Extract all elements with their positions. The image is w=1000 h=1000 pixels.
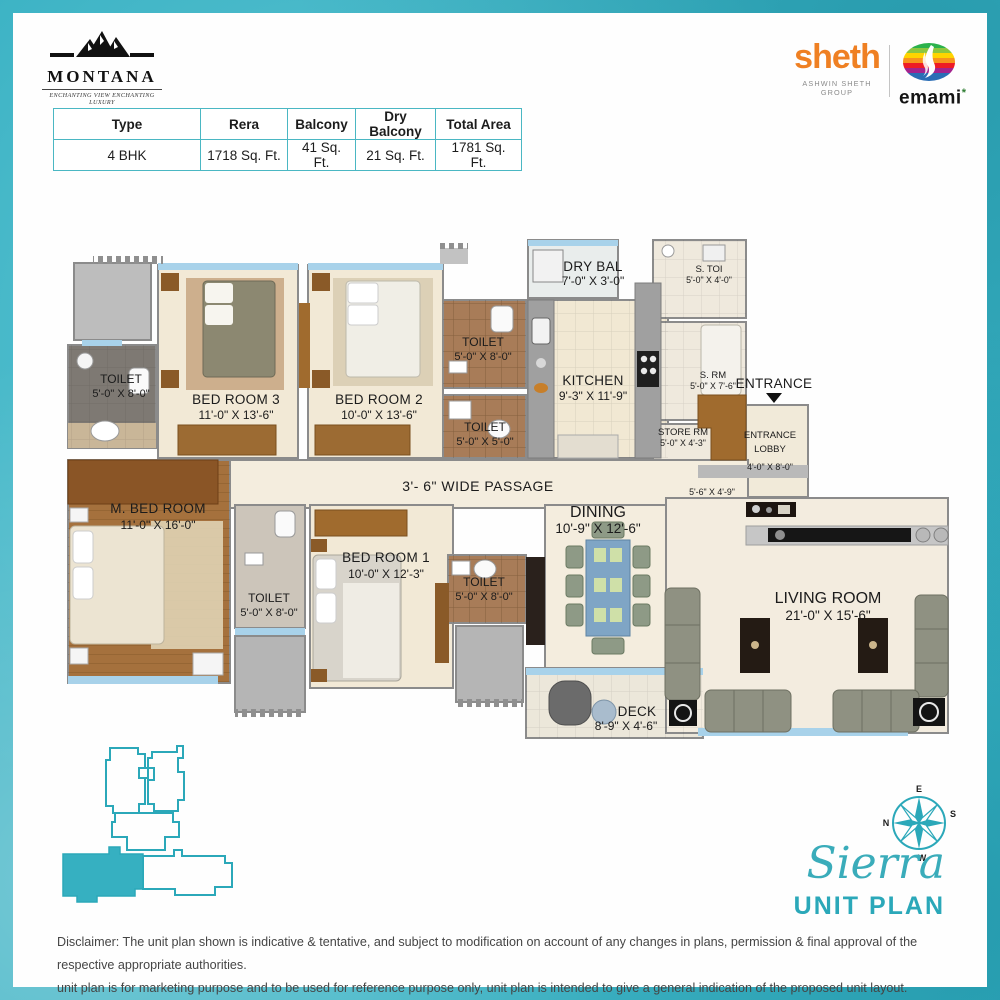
label-drybal-dims: 7'-0" X 3'-0" bbox=[562, 274, 624, 288]
sheth-wordmark: sheth bbox=[787, 40, 887, 74]
ledge-top-left bbox=[74, 263, 151, 340]
label-bedroom1-dims: 10'-0" X 12'-3" bbox=[348, 567, 424, 581]
label-toilet-mid-dims: 5'-0" X 8'-0" bbox=[454, 351, 511, 363]
label-lobby-line1: ENTRANCE bbox=[744, 430, 796, 441]
disclaimer-line1: Disclaimer: The unit plan shown is indic… bbox=[57, 931, 952, 977]
label-lobby-line2: LOBBY bbox=[754, 444, 786, 455]
col-total-area: Total Area bbox=[436, 109, 522, 140]
emami-logo: emami* bbox=[899, 42, 959, 107]
col-type: Type bbox=[54, 109, 201, 140]
label-toilet-5x5-name: TOILET bbox=[464, 420, 506, 434]
col-balcony: Balcony bbox=[288, 109, 356, 140]
project-name: Sierra bbox=[770, 838, 945, 889]
label-deck-dims: 8'-9" X 4'-6" bbox=[595, 719, 657, 733]
keyplan-unit-right bbox=[143, 850, 232, 895]
val-rera: 1718 Sq. Ft. bbox=[201, 140, 288, 171]
keyplan-tower-right bbox=[148, 746, 184, 811]
label-toilet-mbed-name: TOILET bbox=[248, 591, 290, 605]
label-mbed-dims: 11'-0" X 16'-0" bbox=[121, 518, 196, 532]
emami-flame-icon bbox=[901, 42, 957, 82]
label-store-dims: 5'-0" X 4'-3" bbox=[660, 438, 706, 448]
keyplan-bridge bbox=[139, 768, 148, 778]
montana-logo: MONTANA ENCHANTING VIEW ENCHANTING LUXUR… bbox=[42, 27, 162, 106]
label-toilet-dining-dims: 5'-0" X 8'-0" bbox=[455, 591, 512, 603]
label-srm-name: S. RM bbox=[700, 370, 726, 381]
label-lobby-dims: 4'-0" X 8'-0" bbox=[747, 462, 793, 472]
label-living-dims: 21'-0" X 15'-6" bbox=[785, 608, 870, 623]
label-bedroom2-dims: 10'-0" X 13'-6" bbox=[341, 408, 417, 422]
val-total-area: 1781 Sq. Ft. bbox=[436, 140, 522, 171]
floor-plan: TOILET 5'-0" X 8'-0" BED ROOM 3 11'-0" X… bbox=[53, 223, 963, 768]
label-toilet-topleft-name: TOILET bbox=[100, 372, 142, 386]
disclaimer-line2: unit plan is for marketing purpose and t… bbox=[57, 977, 952, 1000]
val-balcony: 41 Sq. Ft. bbox=[288, 140, 356, 171]
label-stoi-name: S. TOI bbox=[695, 264, 722, 275]
key-plan bbox=[55, 738, 305, 910]
label-bedroom1-name: BED ROOM 1 bbox=[342, 550, 430, 565]
sheth-subtitle: ASHWIN SHETH GROUP bbox=[787, 79, 887, 97]
label-toilet-mid-name: TOILET bbox=[462, 335, 504, 349]
keyplan-mid-block bbox=[112, 813, 179, 850]
washing-machine bbox=[533, 250, 563, 282]
shaft-cabinet bbox=[526, 557, 545, 645]
label-kitchen-name: KITCHEN bbox=[562, 373, 623, 388]
label-store-name: STORE RM bbox=[658, 427, 708, 438]
disclaimer: Disclaimer: The unit plan shown is indic… bbox=[57, 931, 952, 1000]
entrance-arrow-icon bbox=[766, 393, 782, 403]
label-bedroom3-name: BED ROOM 3 bbox=[192, 392, 280, 407]
compass-e: E bbox=[916, 784, 922, 794]
label-toilet-5x5-dims: 5'-0" X 5'-0" bbox=[456, 436, 513, 448]
keyplan-unit-highlighted bbox=[63, 847, 143, 902]
compass-s: S bbox=[950, 809, 956, 819]
keyplan-tower-left bbox=[106, 748, 145, 813]
logo-divider bbox=[889, 45, 890, 97]
compass-n: N bbox=[883, 818, 890, 828]
label-kitchen-dims: 9'-3" X 11'-9" bbox=[559, 389, 627, 403]
val-type: 4 BHK bbox=[54, 140, 201, 171]
mbed-furniture bbox=[68, 460, 223, 675]
label-mbed-name: M. BED ROOM bbox=[110, 501, 206, 516]
label-deck-name: DECK bbox=[618, 704, 657, 719]
label-dining-name: DINING bbox=[570, 504, 626, 521]
label-toilet-topleft-dims: 5'-0" X 8'-0" bbox=[92, 388, 149, 400]
emami-wordmark: emami* bbox=[899, 88, 959, 107]
label-drybal-name: DRY BAL bbox=[563, 259, 623, 274]
spec-value-row: 4 BHK 1718 Sq. Ft. 41 Sq. Ft. 21 Sq. Ft.… bbox=[54, 140, 522, 171]
label-entrance: ENTRANCE bbox=[736, 376, 813, 391]
montana-tagline: ENCHANTING VIEW ENCHANTING LUXURY bbox=[42, 89, 162, 106]
label-dining-dims: 10'-9" X 12'-6" bbox=[555, 521, 640, 536]
label-wide-passage: 3'- 6" WIDE PASSAGE bbox=[402, 478, 553, 494]
montana-wordmark: MONTANA bbox=[42, 67, 162, 87]
label-living-name: LIVING ROOM bbox=[775, 590, 882, 607]
label-toilet-mbed-dims: 5'-0" X 8'-0" bbox=[240, 607, 297, 619]
plan-type-title: UNIT PLAN bbox=[770, 892, 945, 921]
label-bedroom3-dims: 11'-0" X 13'-6" bbox=[199, 408, 274, 422]
mountain-icon bbox=[50, 27, 154, 61]
spec-header-row: Type Rera Balcony Dry Balcony Total Area bbox=[54, 109, 522, 140]
col-rera: Rera bbox=[201, 109, 288, 140]
sheth-logo: sheth ASHWIN SHETH GROUP bbox=[787, 40, 887, 97]
label-lobby-passage-dims: 5'-6" X 4'-9" bbox=[689, 487, 735, 497]
wardrobe-divider bbox=[299, 303, 310, 388]
col-dry-balcony: Dry Balcony bbox=[356, 109, 436, 140]
label-srm-dims: 5'-0" X 7'-6" bbox=[690, 381, 736, 391]
val-dry-balcony: 21 Sq. Ft. bbox=[356, 140, 436, 171]
label-stoi-dims: 5'-0" X 4'-0" bbox=[686, 275, 732, 285]
emami-asterisk: * bbox=[962, 87, 967, 99]
spec-table: Type Rera Balcony Dry Balcony Total Area… bbox=[53, 108, 522, 171]
poster: MONTANA ENCHANTING VIEW ENCHANTING LUXUR… bbox=[0, 0, 1000, 1000]
label-bedroom2-name: BED ROOM 2 bbox=[335, 392, 423, 407]
label-toilet-dining-name: TOILET bbox=[463, 575, 505, 589]
